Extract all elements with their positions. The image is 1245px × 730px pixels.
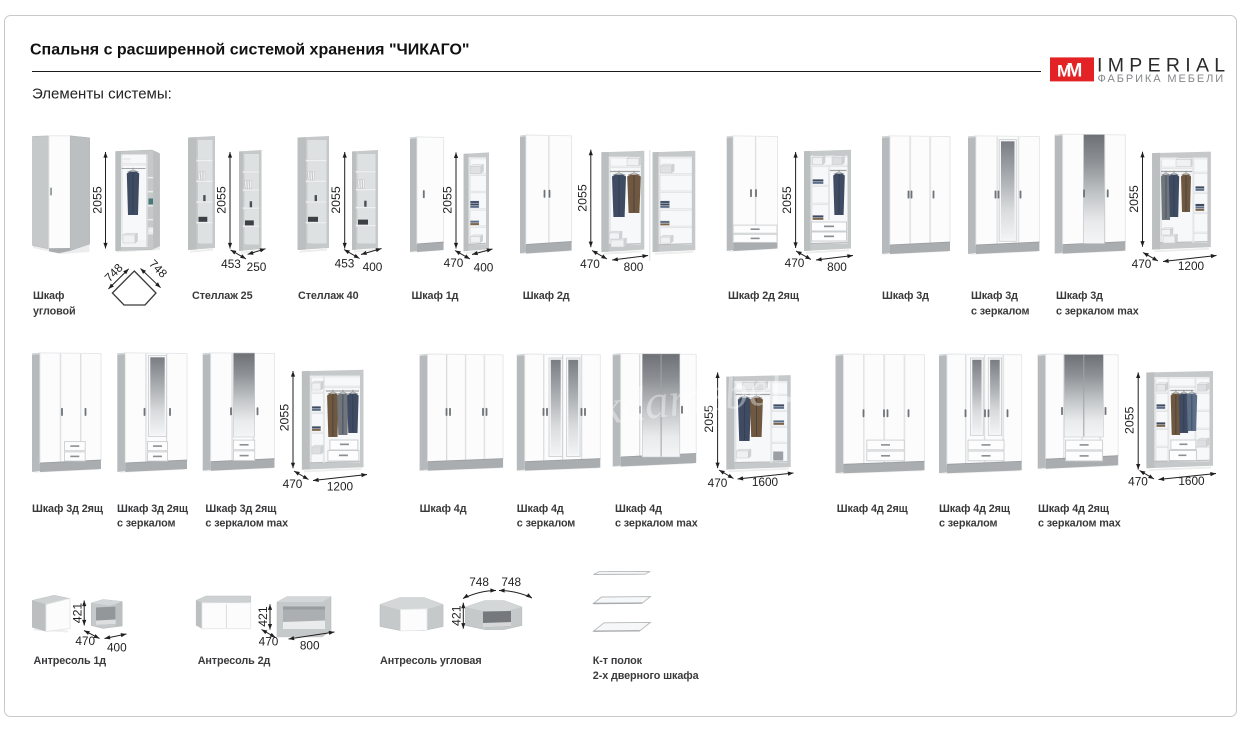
svg-text:Шкаф 4д: Шкаф 4д (615, 503, 662, 515)
svg-text:Шкаф 4д 2ящ: Шкаф 4д 2ящ (939, 503, 1010, 515)
svg-text:угловой: угловой (33, 306, 76, 318)
svg-text:с зеркалом max: с зеркалом max (1056, 306, 1139, 318)
svg-text:1600: 1600 (752, 475, 779, 489)
svg-text:Шкаф 3д 2ящ: Шкаф 3д 2ящ (205, 503, 276, 515)
svg-text:Антресоль угловая: Антресоль угловая (380, 655, 482, 667)
svg-text:800: 800 (827, 260, 847, 274)
svg-text:2055: 2055 (91, 186, 105, 214)
svg-text:ФАБРИКА МЕБЕЛИ: ФАБРИКА МЕБЕЛИ (1098, 73, 1226, 85)
svg-text:Шкаф 2д 2ящ: Шкаф 2д 2ящ (728, 290, 799, 302)
svg-text:Шкаф 4д 2ящ: Шкаф 4д 2ящ (1038, 503, 1109, 515)
svg-text:453: 453 (335, 257, 355, 271)
svg-text:2055: 2055 (575, 184, 589, 212)
svg-text:Антресоль 2д: Антресоль 2д (198, 655, 271, 667)
svg-text:Элементы системы:: Элементы системы: (32, 86, 172, 103)
svg-text:с зеркалом max: с зеркалом max (1038, 518, 1121, 530)
svg-text:470: 470 (444, 256, 464, 270)
svg-text:2055: 2055 (215, 186, 229, 214)
svg-text:2055: 2055 (329, 186, 343, 214)
svg-text:с зеркалом: с зеркалом (117, 518, 176, 530)
svg-text:400: 400 (474, 261, 494, 275)
svg-text:470: 470 (785, 256, 805, 270)
svg-text:Шкаф 3д: Шкаф 3д (1056, 290, 1103, 302)
svg-text:Шкаф 3д: Шкаф 3д (882, 290, 929, 302)
svg-text:800: 800 (624, 260, 644, 274)
svg-text:250: 250 (247, 260, 267, 274)
svg-text:1600: 1600 (1178, 474, 1205, 488)
svg-text:2055: 2055 (278, 404, 292, 432)
svg-text:Стеллаж 25: Стеллаж 25 (192, 290, 253, 302)
svg-text:Спальня с расширенной системой: Спальня с расширенной системой хранения … (30, 42, 470, 59)
svg-text:1200: 1200 (327, 480, 354, 494)
svg-text:Шкаф 4д 2ящ: Шкаф 4д 2ящ (837, 503, 908, 515)
svg-text:748: 748 (469, 575, 489, 589)
svg-text:Шкаф 3д 2ящ: Шкаф 3д 2ящ (32, 503, 103, 515)
svg-text:470: 470 (75, 634, 95, 648)
svg-text:421: 421 (70, 603, 84, 624)
svg-text:К-т полок: К-т полок (593, 655, 643, 667)
svg-text:Шкаф 1д: Шкаф 1д (412, 290, 459, 302)
svg-text:400: 400 (363, 260, 383, 274)
svg-text:470: 470 (580, 257, 600, 271)
svg-text:453: 453 (221, 257, 241, 271)
svg-text:2-х дверного шкафа: 2-х дверного шкафа (593, 670, 700, 682)
svg-text:400: 400 (107, 641, 127, 655)
svg-text:800: 800 (300, 638, 320, 652)
svg-text:2055: 2055 (1127, 185, 1141, 213)
svg-text:2055: 2055 (1123, 406, 1137, 434)
svg-text:470: 470 (1132, 257, 1152, 271)
svg-text:1200: 1200 (1178, 259, 1205, 273)
svg-text:Стеллаж 40: Стеллаж 40 (298, 290, 359, 302)
svg-text:Шкаф 2д: Шкаф 2д (523, 290, 570, 302)
svg-text:Шкаф 3д 2ящ: Шкаф 3д 2ящ (117, 503, 188, 515)
svg-text:421: 421 (256, 606, 270, 627)
svg-text:2055: 2055 (441, 186, 455, 214)
svg-text:с зеркалом: с зеркалом (939, 518, 998, 530)
svg-text:470: 470 (259, 634, 279, 648)
svg-text:2055: 2055 (780, 186, 794, 214)
svg-text:470: 470 (283, 477, 303, 491)
svg-text:Шкаф 3д: Шкаф 3д (971, 290, 1018, 302)
svg-text:470: 470 (708, 476, 728, 490)
svg-text:с зеркалом max: с зеркалом max (615, 518, 698, 530)
svg-text:Антресоль 1д: Антресоль 1д (34, 655, 107, 667)
svg-text:с зеркалом: с зеркалом (971, 306, 1030, 318)
svg-text:470: 470 (1128, 475, 1148, 489)
svg-text:с зеркалом: с зеркалом (517, 518, 576, 530)
svg-text:M: M (1067, 61, 1083, 82)
svg-text:748: 748 (501, 575, 521, 589)
svg-text:Шкаф: Шкаф (33, 290, 65, 302)
svg-text:Шкаф 4д: Шкаф 4д (420, 503, 467, 515)
svg-text:с зеркалом max: с зеркалом max (205, 518, 288, 530)
svg-text:421: 421 (450, 605, 464, 626)
svg-text:Шкаф 4д: Шкаф 4д (517, 503, 564, 515)
